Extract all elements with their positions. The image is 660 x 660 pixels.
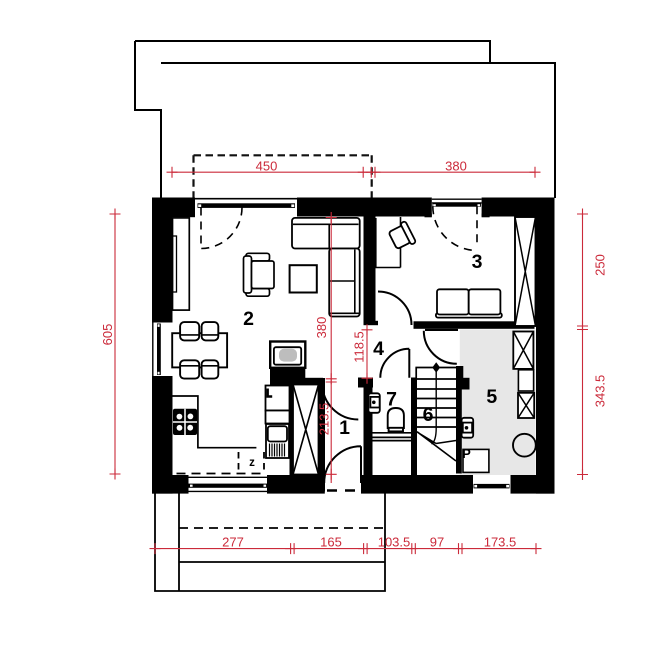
svg-text:343.5: 343.5 [593, 375, 608, 408]
svg-text:165: 165 [320, 534, 342, 549]
svg-text:380: 380 [314, 317, 329, 339]
svg-text:103.5: 103.5 [378, 534, 411, 549]
svg-text:z: z [249, 457, 255, 469]
svg-text:213.5: 213.5 [317, 403, 332, 436]
svg-text:7: 7 [386, 389, 397, 411]
svg-text:97: 97 [430, 534, 444, 549]
svg-text:5: 5 [486, 386, 497, 408]
svg-text:3: 3 [472, 251, 483, 273]
svg-text:6: 6 [423, 404, 434, 426]
svg-text:380: 380 [445, 158, 467, 173]
svg-text:605: 605 [100, 324, 115, 346]
svg-text:250: 250 [593, 254, 608, 276]
svg-text:277: 277 [222, 534, 244, 549]
svg-text:173.5: 173.5 [484, 534, 517, 549]
svg-text:4: 4 [373, 338, 384, 360]
svg-text:118.5: 118.5 [352, 331, 367, 363]
svg-text:P: P [462, 446, 471, 461]
svg-text:1: 1 [339, 417, 350, 439]
svg-text:2: 2 [243, 308, 254, 330]
svg-text:450: 450 [256, 158, 278, 173]
